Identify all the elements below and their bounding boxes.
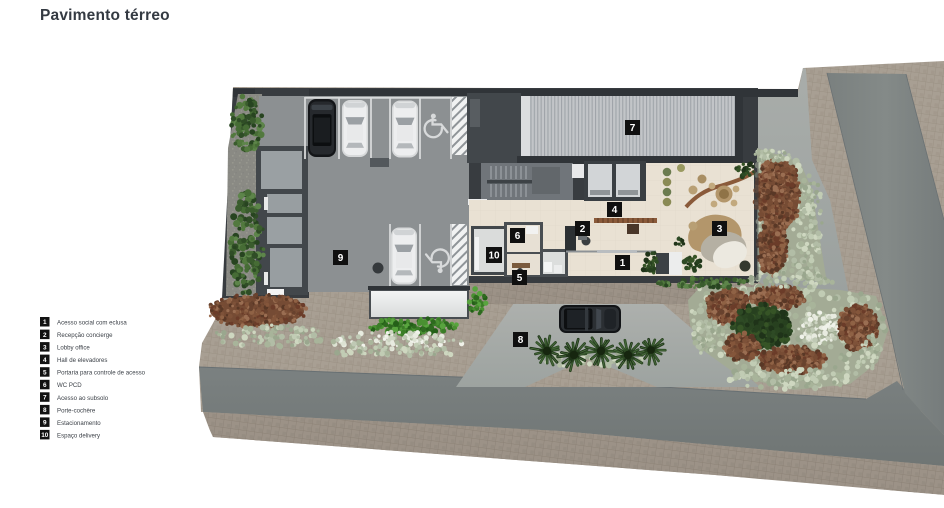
svg-text:Hall de elevadores: Hall de elevadores xyxy=(57,357,107,364)
svg-text:Pavimento térreo: Pavimento térreo xyxy=(40,7,170,24)
svg-text:WC PCD: WC PCD xyxy=(57,382,82,389)
svg-text:8: 8 xyxy=(518,335,524,346)
svg-text:1: 1 xyxy=(43,319,47,326)
svg-text:9: 9 xyxy=(43,420,47,427)
svg-text:3: 3 xyxy=(43,344,47,351)
svg-text:Recepção concierge: Recepção concierge xyxy=(57,332,113,339)
svg-text:Porte-cochère: Porte-cochère xyxy=(57,407,96,414)
svg-text:8: 8 xyxy=(43,407,47,414)
svg-text:2: 2 xyxy=(580,224,586,235)
svg-text:6: 6 xyxy=(515,231,521,242)
svg-text:3: 3 xyxy=(717,224,723,235)
svg-text:6: 6 xyxy=(43,382,47,389)
svg-text:Estacionamento: Estacionamento xyxy=(57,420,101,427)
svg-text:Acesso social com eclusa: Acesso social com eclusa xyxy=(57,320,127,327)
svg-text:Espaço delivery: Espaço delivery xyxy=(57,432,101,439)
svg-text:1: 1 xyxy=(620,258,626,269)
svg-text:5: 5 xyxy=(43,369,47,376)
svg-text:Lobby office: Lobby office xyxy=(57,345,90,352)
svg-text:4: 4 xyxy=(612,205,618,216)
svg-text:Acesso ao subsolo: Acesso ao subsolo xyxy=(57,395,109,402)
svg-text:5: 5 xyxy=(517,273,523,284)
svg-text:7: 7 xyxy=(630,123,636,134)
svg-text:10: 10 xyxy=(41,432,49,439)
svg-text:Portaria para controle de aces: Portaria para controle de acesso xyxy=(57,370,146,377)
svg-text:4: 4 xyxy=(43,357,47,364)
svg-text:7: 7 xyxy=(43,395,47,402)
svg-text:10: 10 xyxy=(488,250,500,261)
svg-text:2: 2 xyxy=(43,332,47,339)
svg-text:9: 9 xyxy=(338,253,344,264)
